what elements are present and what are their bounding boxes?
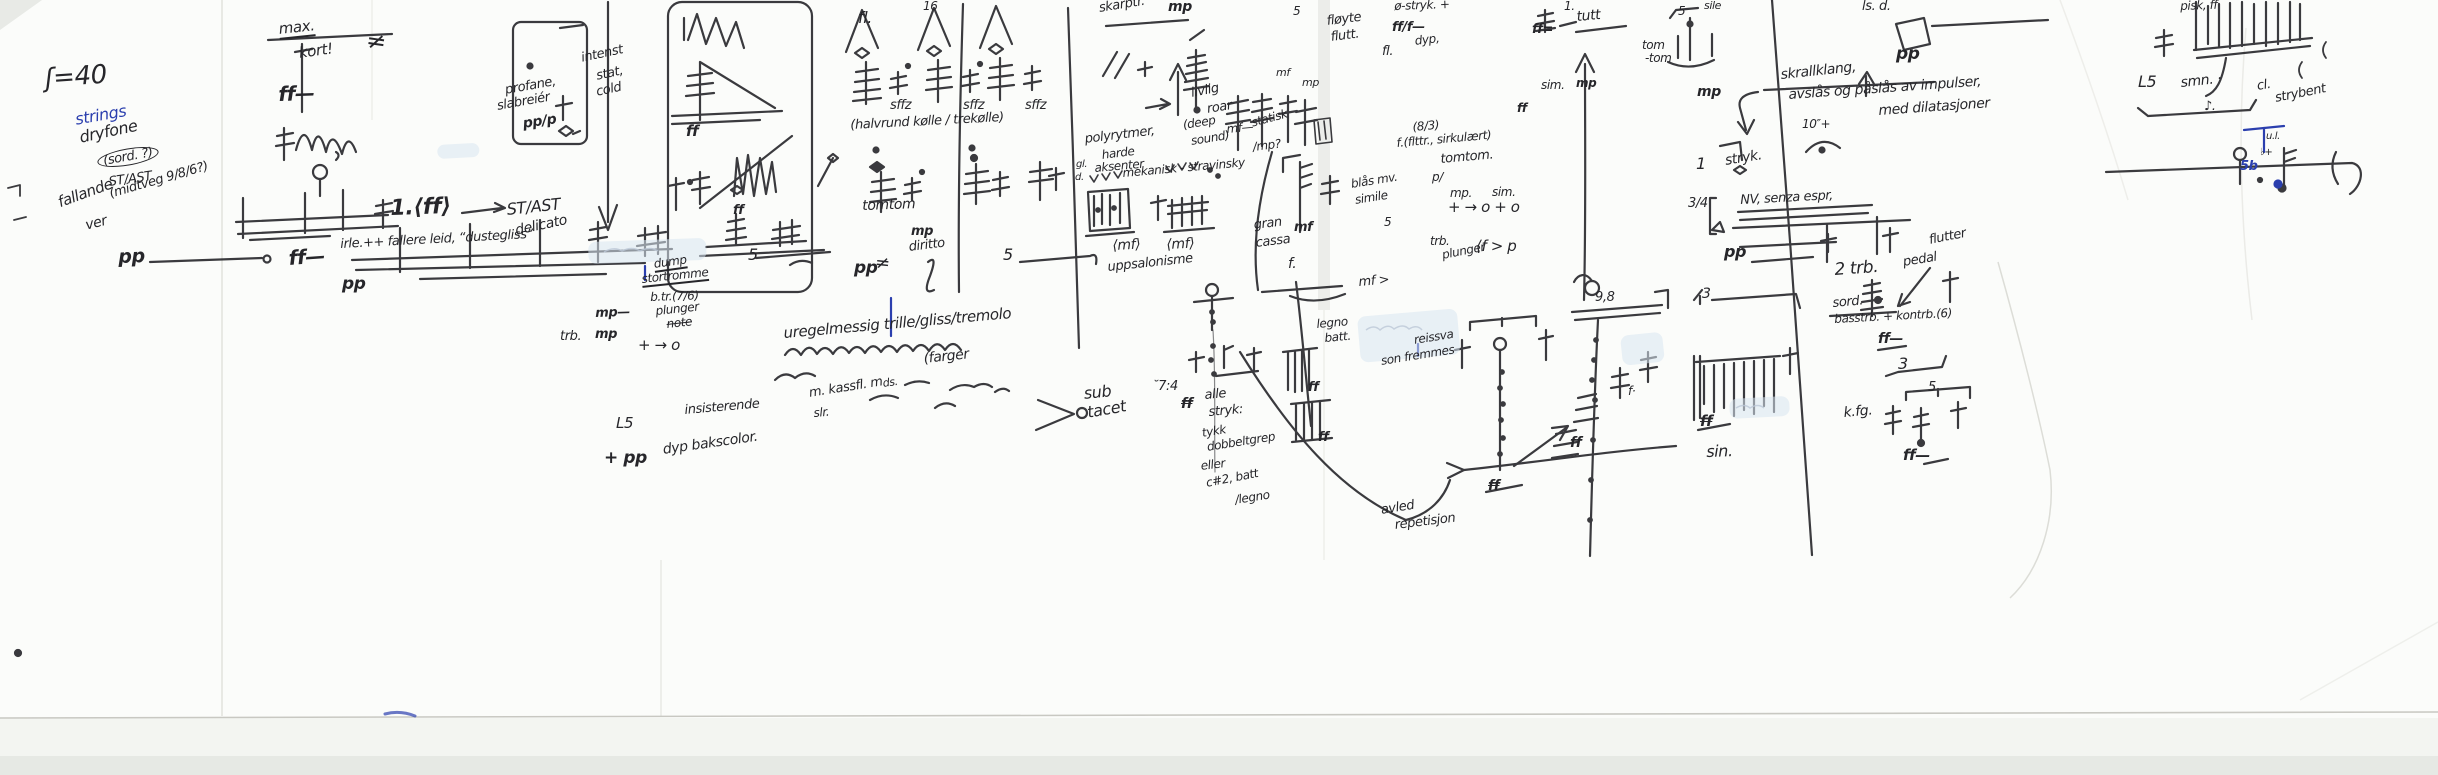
dynamic-ff: ff xyxy=(1700,414,1712,429)
annotation: batt. xyxy=(1324,330,1351,344)
annotation: 5 xyxy=(1678,5,1685,17)
annotation: tutt xyxy=(1576,8,1601,24)
dynamic-ff: ff— xyxy=(1903,448,1930,463)
dynamic-pp: pp xyxy=(342,276,366,293)
dynamic-ff: ff xyxy=(686,124,698,139)
annotation: 5 xyxy=(1384,216,1391,228)
tempo-marking: ʃ=40 xyxy=(44,62,108,92)
annotation: 9,8 xyxy=(1595,291,1614,304)
annotation: f· xyxy=(1628,385,1635,397)
annotation: sffz xyxy=(1025,99,1046,112)
annotation: mp xyxy=(1168,0,1192,14)
annotation: 5 xyxy=(1928,381,1936,394)
annotation: /mp? xyxy=(1252,138,1281,153)
annotation: slr. xyxy=(813,406,830,419)
annotation: k.fg. xyxy=(1843,403,1873,419)
annotation: mp xyxy=(595,328,617,341)
dynamic-ff: ff xyxy=(1181,397,1192,411)
annotation: fl. xyxy=(1382,45,1393,58)
annotation: trb. xyxy=(1430,235,1449,247)
annotation: 10″+ xyxy=(1802,118,1830,130)
annotation: mf > xyxy=(1358,273,1390,289)
highlight-smudge xyxy=(1620,332,1665,366)
annotation: max. xyxy=(278,18,316,40)
annotation: sim. xyxy=(1492,186,1516,198)
annotation: 3 xyxy=(1702,287,1711,301)
annotation: 5 xyxy=(1003,247,1013,263)
annotation: ˘7:4 xyxy=(1152,380,1178,393)
dynamic-pp: pp xyxy=(118,247,145,267)
annotation: sffz xyxy=(890,99,911,112)
dynamic-ff: ff— xyxy=(278,83,315,104)
annotation: note xyxy=(666,315,693,330)
pencil-scribbles xyxy=(604,249,1764,409)
annotation: eller xyxy=(1200,457,1226,472)
annotation: ♪. xyxy=(2204,100,2216,113)
annotation: dyp, xyxy=(1414,32,1440,47)
annotation: 5 xyxy=(748,247,758,263)
annotation: (8/3) xyxy=(1412,119,1440,133)
annotation: ⟨mf⟩ xyxy=(1112,238,1141,253)
annotation: gl. xyxy=(1076,160,1087,170)
blue-ink-marks xyxy=(385,126,2284,716)
annotation: 1. xyxy=(1564,0,1575,12)
ink-figures xyxy=(8,0,2361,656)
annotation: ♭+ xyxy=(2260,148,2272,158)
annotation: alle xyxy=(1204,387,1227,402)
annotation: cl. xyxy=(2256,78,2272,93)
annotation: tomtom xyxy=(862,197,915,213)
scanner-strip xyxy=(1318,0,1330,310)
sharp-sign: ≠ xyxy=(874,254,890,273)
annotation: sim. xyxy=(1541,79,1565,91)
dynamic-ff: ff xyxy=(1570,436,1581,450)
annotation: 16 xyxy=(923,0,937,12)
highlight-smudge xyxy=(588,238,707,264)
annotation: 2 trb. xyxy=(1834,259,1879,279)
annotation: sin. xyxy=(1706,443,1733,460)
annotation: smn. · xyxy=(2180,72,2222,90)
dynamic-ff: ff— xyxy=(1878,332,1903,346)
annotation: ls. d. xyxy=(1862,0,1891,13)
annotation: mp xyxy=(1697,85,1721,99)
annotation: trb. xyxy=(560,330,581,343)
annotation: sffz xyxy=(963,99,984,112)
annotation: tom xyxy=(1642,39,1665,51)
annotation: ⟨mf⟩ xyxy=(1166,237,1195,252)
paper-bottom-edge xyxy=(0,712,2438,718)
annotation: ø-stryk. + xyxy=(1394,0,1450,12)
annotation: fløyte xyxy=(1326,11,1362,28)
annotation: p/ xyxy=(1432,171,1443,183)
annotation: ff= xyxy=(1532,23,1553,36)
annotation: pisk, ff xyxy=(2180,0,2217,12)
annotation: mp— xyxy=(595,306,630,320)
dynamic-ff: ff xyxy=(1488,479,1499,493)
dynamic-ff: ff xyxy=(1517,102,1527,114)
annotation: flutt. xyxy=(1330,28,1360,44)
annotation: ds. xyxy=(882,376,898,389)
sharp-sign: ≠ xyxy=(365,28,388,55)
highlight-smudge xyxy=(1729,396,1790,419)
annotation: d. xyxy=(1075,173,1084,183)
annotation: f. xyxy=(1288,257,1296,271)
annotation: mp xyxy=(911,225,933,238)
annotation: mp xyxy=(1576,77,1596,89)
annotation: 3 xyxy=(1898,356,1908,372)
annotation: fl. xyxy=(858,10,872,26)
annotation: mf— xyxy=(1226,121,1254,135)
annotation: mp xyxy=(1302,77,1319,88)
annotation: + → o + o xyxy=(1448,200,1520,215)
annotation: mf xyxy=(1294,221,1312,234)
dynamic-ff: ff xyxy=(733,204,744,217)
annotation: sile xyxy=(1704,0,1721,11)
annotation: 5 xyxy=(1293,5,1300,17)
dynamic-pp: pp xyxy=(1896,46,1920,63)
annotation: stryk: xyxy=(1208,403,1243,419)
annotation: cassa xyxy=(1255,233,1291,250)
annotation: ⟨f > p xyxy=(1476,239,1516,254)
sketch-page: ʃ=40stringsdryfone(sord. ?)ST/ASTfalland… xyxy=(0,0,2438,775)
annotation: + pp xyxy=(604,450,647,467)
annotation: 3/4 xyxy=(1688,197,1708,210)
dynamic-ff: ff xyxy=(1318,431,1329,444)
highlight-smudge xyxy=(437,143,480,159)
annotation: ff/f— xyxy=(1392,21,1425,34)
annotation: L5 xyxy=(2138,74,2156,90)
annotation: u.l. xyxy=(2266,132,2280,142)
annotation: 1 xyxy=(1696,156,1706,172)
annotation: sord. xyxy=(1832,294,1863,310)
annotation: 1.⟨ff⟩ xyxy=(390,196,451,220)
dynamic-ff: ff xyxy=(1308,381,1319,394)
dynamic-pp: pp xyxy=(1724,244,1746,260)
annotation: legno xyxy=(1316,315,1348,330)
annotation: gran xyxy=(1253,216,1283,232)
annotation: + → o xyxy=(638,338,680,353)
annotation: mf xyxy=(1276,67,1290,78)
annotation: -tom xyxy=(1645,52,1671,64)
dynamic-ff: ff— xyxy=(288,245,326,267)
annotation: L5 xyxy=(616,416,633,431)
annotation: 5b xyxy=(2240,160,2258,173)
